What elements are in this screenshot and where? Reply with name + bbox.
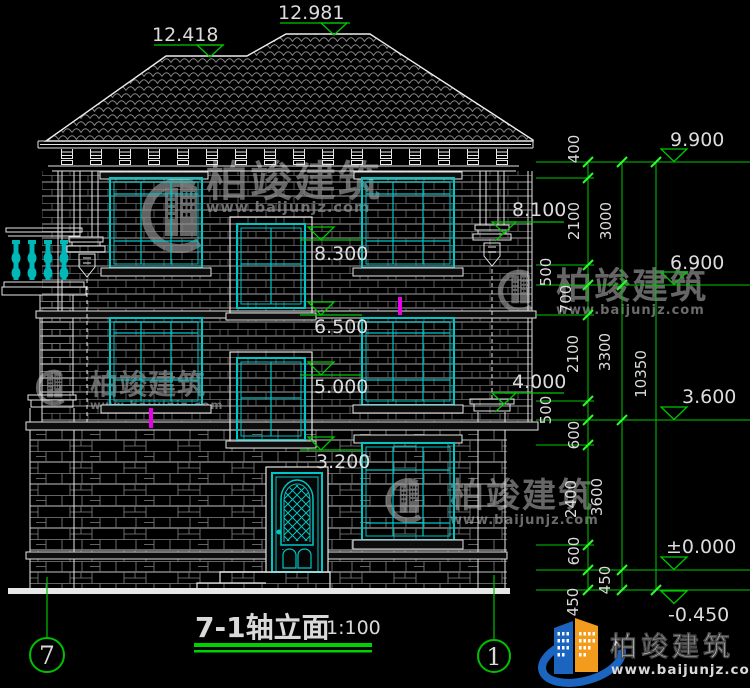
window-sill (353, 405, 463, 413)
title-underline (194, 643, 372, 647)
door-lattice (284, 485, 310, 541)
roof (46, 34, 533, 141)
dim-label: 600 (565, 537, 583, 566)
elevation-value: 12.981 (278, 2, 344, 24)
entrance-door (266, 467, 328, 572)
elevation-value: 3.200 (316, 451, 370, 473)
elevation-drawing-canvas: 柏竣建筑 www.baijunjz.com 柏竣建筑 www.baijunjz.… (0, 0, 750, 688)
elevation-value: 12.418 (152, 24, 218, 46)
dim-label: 700 (557, 285, 575, 314)
window-sill (353, 540, 463, 549)
elevation-value: -0.450 (668, 604, 729, 626)
dim-label: 3600 (588, 478, 606, 516)
dim-label: 500 (537, 396, 555, 425)
dim-label-overall: 10350 (632, 350, 650, 398)
magenta-axis-tick (149, 408, 153, 428)
brick-wall-upper (42, 171, 532, 422)
dim-label: 2100 (564, 335, 582, 373)
logo-building-orange (575, 618, 598, 672)
dim-label: 450 (564, 588, 582, 617)
drawing-scale: 1:100 (326, 617, 381, 639)
title-block: 7-1轴立面 1:100 (194, 611, 381, 653)
elevation-value: 6.900 (670, 252, 724, 274)
dim-label: 450 (596, 566, 614, 595)
dim-label: 3000 (597, 202, 615, 240)
ground-line (8, 588, 510, 594)
window-sill (353, 268, 463, 276)
window-sill (101, 405, 211, 413)
magenta-axis-tick (398, 297, 402, 315)
drawing-title: 7-1轴立面 (195, 611, 330, 644)
elevation-value: 5.000 (314, 376, 368, 398)
brand-logo: 柏竣建筑 www.baijunjz.com (537, 618, 750, 688)
door-handle (277, 530, 281, 534)
window-sill (226, 441, 316, 448)
logo-brand-text: 柏竣建筑 (610, 631, 734, 663)
logo-url-text: www.baijunjz.com (611, 662, 750, 678)
axis-number: 1 (486, 643, 501, 671)
dim-label: 400 (565, 135, 583, 164)
elevation-value: 8.300 (314, 243, 368, 265)
elevation-value: 4.000 (512, 371, 566, 393)
elevation-value: 3.600 (682, 386, 736, 408)
dim-label: 3300 (596, 333, 614, 371)
dim-label: 2100 (565, 202, 583, 240)
dim-label: 500 (537, 258, 555, 287)
watermark-url: www.baijunjz.com (556, 303, 705, 318)
elevation-value: ±0.000 (666, 536, 736, 558)
axis-number: 7 (39, 641, 55, 670)
elevation-value: 8.100 (512, 199, 566, 221)
floor-band-lower (26, 422, 538, 430)
dim-label: 2400 (562, 480, 580, 518)
brick-wing-wall (40, 295, 73, 395)
elevation-value: 9.900 (670, 129, 724, 151)
window-sill (226, 313, 316, 320)
window-sill (101, 268, 211, 276)
dim-label: 600 (565, 421, 583, 450)
title-underline (194, 650, 372, 653)
elevation-value: 6.500 (314, 316, 368, 338)
cornice (38, 141, 533, 171)
